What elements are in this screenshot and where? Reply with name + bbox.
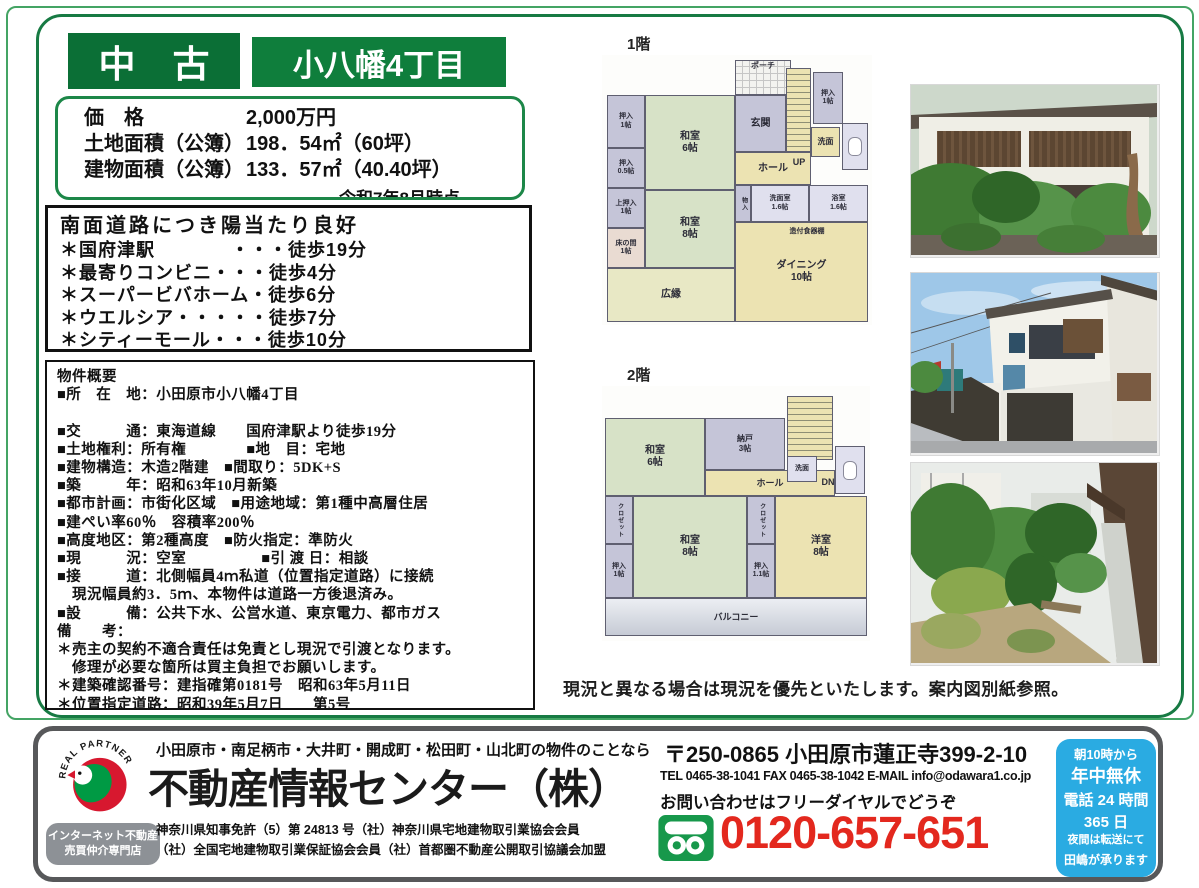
room-oshiire2-1jo: 押入 1帖 <box>605 544 633 598</box>
overview-line: ■所 在 地：小田原市小八幡4丁目 <box>57 386 533 404</box>
room-stairs-down <box>787 396 833 460</box>
price-row: 建物面積（公簿）133．57㎡（40.40坪） <box>84 157 522 183</box>
listing-type-label: 中 古 <box>99 34 210 88</box>
hours-line: 年中無休 <box>1071 764 1141 789</box>
room-porch: ポーチ <box>735 60 791 95</box>
label-cupboard: 造付食器棚 <box>762 226 852 238</box>
price-row-label: 土地面積（公簿） <box>84 131 246 157</box>
floor2-label: 2階 <box>627 364 650 385</box>
overview-line: ■接 道：北側幅員4ｍ私道（位置指定道路）に接続 <box>57 568 533 586</box>
hours-line: 朝10時から <box>1074 746 1138 764</box>
listing-type-badge: 中 古 <box>68 33 240 89</box>
room-senmen-2f: 洗面 <box>787 456 817 482</box>
overview-line: ＊売主の契約不適合責任は免責とし現況で引渡となります。 <box>57 641 533 659</box>
company-name: 不動産情報センター（株） <box>148 755 628 815</box>
room-washitsu2-8jo: 和室 8帖 <box>633 496 747 598</box>
plan-caption: 現況と異なる場合は現況を優先といたします。案内図別紙参照。 <box>563 675 1173 700</box>
badge-line-1: インターネット不動産 <box>48 829 158 844</box>
room-genkan: 玄関 <box>735 95 786 152</box>
overview-line: ■都市計画：市街化区域 ■用途地域：第1種中高層住居 <box>57 495 533 513</box>
overview-line: ■建物構造：木造2階建 ■間取り：5DK+S <box>57 459 533 477</box>
photo-garden-image <box>911 463 1157 663</box>
footer: REAL PARTNER インターネット不動産 売買仲介専門店 小田原市・南足柄… <box>33 726 1163 882</box>
license-line-2: （社）全国宅地建物取引業保証協会会員（社）首都圏不動産公開取引協議会加盟 <box>156 839 606 858</box>
overview-line: ■現 況：空室 ■引 渡 日：相談 <box>57 550 533 568</box>
photo-exterior-front <box>910 84 1160 258</box>
price-row-label: 建物面積（公簿） <box>84 157 246 183</box>
postal-address: 〒250-0865 小田原市蓮正寺399-2-10 <box>664 737 1027 769</box>
price-row: 土地面積（公簿）198．54㎡（60坪） <box>84 131 522 157</box>
overview-line <box>57 404 533 422</box>
floorplan-1f: ポーチ押入 1帖玄関洗面押入 1帖和室 6帖押入 0.5帖上押入 1帖床の間 1… <box>602 55 872 325</box>
photo-garden <box>910 462 1160 666</box>
floor1-label: 1階 <box>627 33 650 54</box>
overview-line: ■土地権利：所有権 ■地 目：宅地 <box>57 441 533 459</box>
overview-line: ■高度地区：第2種高度 ■防火指定：準防火 <box>57 532 533 550</box>
access-item: ＊最寄りコンビニ・・・徒歩4分 <box>60 262 529 285</box>
room-youshitsu-8jo: 洋室 8帖 <box>775 496 867 598</box>
price-box: 価 格2,000万円土地面積（公簿）198．54㎡（60坪）建物面積（公簿）13… <box>55 96 525 200</box>
overview-line: ■建ぺい率60％ 容積率200％ <box>57 514 533 532</box>
room-senmenshitsu: 洗面室 1.6帖 <box>751 185 809 222</box>
freedial-number: 0120-657-651 <box>720 807 988 859</box>
photo-exterior-front-image <box>911 85 1157 255</box>
access-item: ＊国府津駅 ・・・徒歩19分 <box>60 239 529 262</box>
room-senmen-1f: 洗面 <box>811 127 840 157</box>
room-monoire: 物入 <box>735 185 751 222</box>
room-closet-left: クロゼット <box>605 496 633 544</box>
room-washitsu-6jo: 和室 6帖 <box>645 95 735 190</box>
hours-line: 夜間は転送にて <box>1068 833 1145 849</box>
overview-line: 現況幅員約3．5ｍ、本物件は道路一方後退済み。 <box>57 586 533 604</box>
price-row-value: 2,000万円 <box>246 105 336 131</box>
overview-lines: 物件概要■所 在 地：小田原市小八幡4丁目■交 通：東海道線 国府津駅より徒歩1… <box>57 368 533 710</box>
license-line-1: 神奈川県知事免許（5）第 24813 号（社）神奈川県宅地建物取引業協会会員 <box>156 819 580 838</box>
overview-line: 修理が必要な箇所は買主負担でお願いします。 <box>57 659 533 677</box>
room-kamioshiire: 上押入 1帖 <box>607 188 645 228</box>
hours-line: 365 日 <box>1084 812 1128 834</box>
price-row: 価 格2,000万円 <box>84 105 522 131</box>
internet-realty-badge: インターネット不動産 売買仲介専門店 <box>46 823 160 865</box>
room-engawa: 広縁 <box>607 268 735 322</box>
overview-line: 物件概要 <box>57 368 533 386</box>
label-dn: DN <box>815 474 841 490</box>
room-balcony: バルコニー <box>605 598 867 636</box>
floorplan-2f: 和室 6帖納戸 3帖ホール洗面DNクロゼット押入 1帖和室 8帖クロゼット押入 … <box>602 386 870 641</box>
room-nando: 納戸 3帖 <box>705 418 785 470</box>
room-yokushitsu: 浴室 1.6帖 <box>809 185 868 222</box>
location-title-badge: 小八幡4丁目 <box>252 37 506 87</box>
room-washitsu-8jo: 和室 8帖 <box>645 190 735 268</box>
price-as-of: 令和7年8月時点 <box>339 184 522 200</box>
photo-exterior-side-image <box>911 273 1157 453</box>
hours-line: 田嶋が承ります <box>1064 852 1148 869</box>
label-up: UP <box>786 154 812 170</box>
freedial-icon <box>658 815 714 861</box>
price-row-label: 価 格 <box>84 105 246 131</box>
room-oshiire-1jo: 押入 1帖 <box>607 95 645 148</box>
room-tokonoma: 床の間 1帖 <box>607 228 645 268</box>
room-oshiire2-11jo: 押入 1.1帖 <box>747 544 775 598</box>
highlight-box: 南面道路につき陽当たり良好 ＊国府津駅 ・・・徒歩19分＊最寄りコンビニ・・・徒… <box>45 205 532 352</box>
price-row-value: 133．57㎡（40.40坪） <box>246 157 452 183</box>
room-oshiire-05jo: 押入 0.5帖 <box>607 148 645 188</box>
real-partner-logo-icon: REAL PARTNER <box>52 735 140 819</box>
access-item: ＊シティーモール・・・徒歩10分 <box>60 329 529 352</box>
room-oshiire-tr: 押入 1帖 <box>813 72 843 124</box>
tel-fax-email-line: TEL 0465-38-1041 FAX 0465-38-1042 E-MAIL… <box>660 769 1031 783</box>
hours-line: 電話 24 時間 <box>1063 790 1148 812</box>
overview-line: ■交 通：東海道線 国府津駅より徒歩19分 <box>57 423 533 441</box>
badge-line-2: 売買仲介専門店 <box>65 844 142 859</box>
overview-line: ■築 年：昭和63年10月新築 <box>57 477 533 495</box>
overview-line: ■設 備：公共下水、公営水道、東京電力、都市ガス <box>57 605 533 623</box>
business-hours-box: 朝10時から年中無休電話 24 時間365 日夜間は転送にて田嶋が承ります <box>1056 739 1156 877</box>
price-rows: 価 格2,000万円土地面積（公簿）198．54㎡（60坪）建物面積（公簿）13… <box>84 105 522 183</box>
highlight-title: 南面道路につき陽当たり良好 <box>60 213 529 239</box>
room-washitsu2-6jo: 和室 6帖 <box>605 418 705 496</box>
access-list: ＊国府津駅 ・・・徒歩19分＊最寄りコンビニ・・・徒歩4分＊スーパービバホーム・… <box>60 239 529 352</box>
photo-exterior-side <box>910 272 1160 456</box>
room-stairs-up <box>786 68 811 152</box>
overview-line: ＊建築確認番号：建指確第0181号 昭和63年5月11日 <box>57 677 533 695</box>
overview-line: ＊位置指定道路：昭和39年5月7日 第5号 <box>57 696 533 710</box>
location-title-label: 小八幡4丁目 <box>293 40 465 85</box>
access-item: ＊スーパービバホーム・徒歩6分 <box>60 284 529 307</box>
access-item: ＊ウエルシア・・・・・徒歩7分 <box>60 307 529 330</box>
room-closet-center: クロゼット <box>747 496 775 544</box>
room-toilet-1f <box>842 123 868 170</box>
property-overview-box: 物件概要■所 在 地：小田原市小八幡4丁目■交 通：東海道線 国府津駅より徒歩1… <box>45 360 535 710</box>
price-row-value: 198．54㎡（60坪） <box>246 131 424 157</box>
overview-line: 備 考： <box>57 623 533 641</box>
